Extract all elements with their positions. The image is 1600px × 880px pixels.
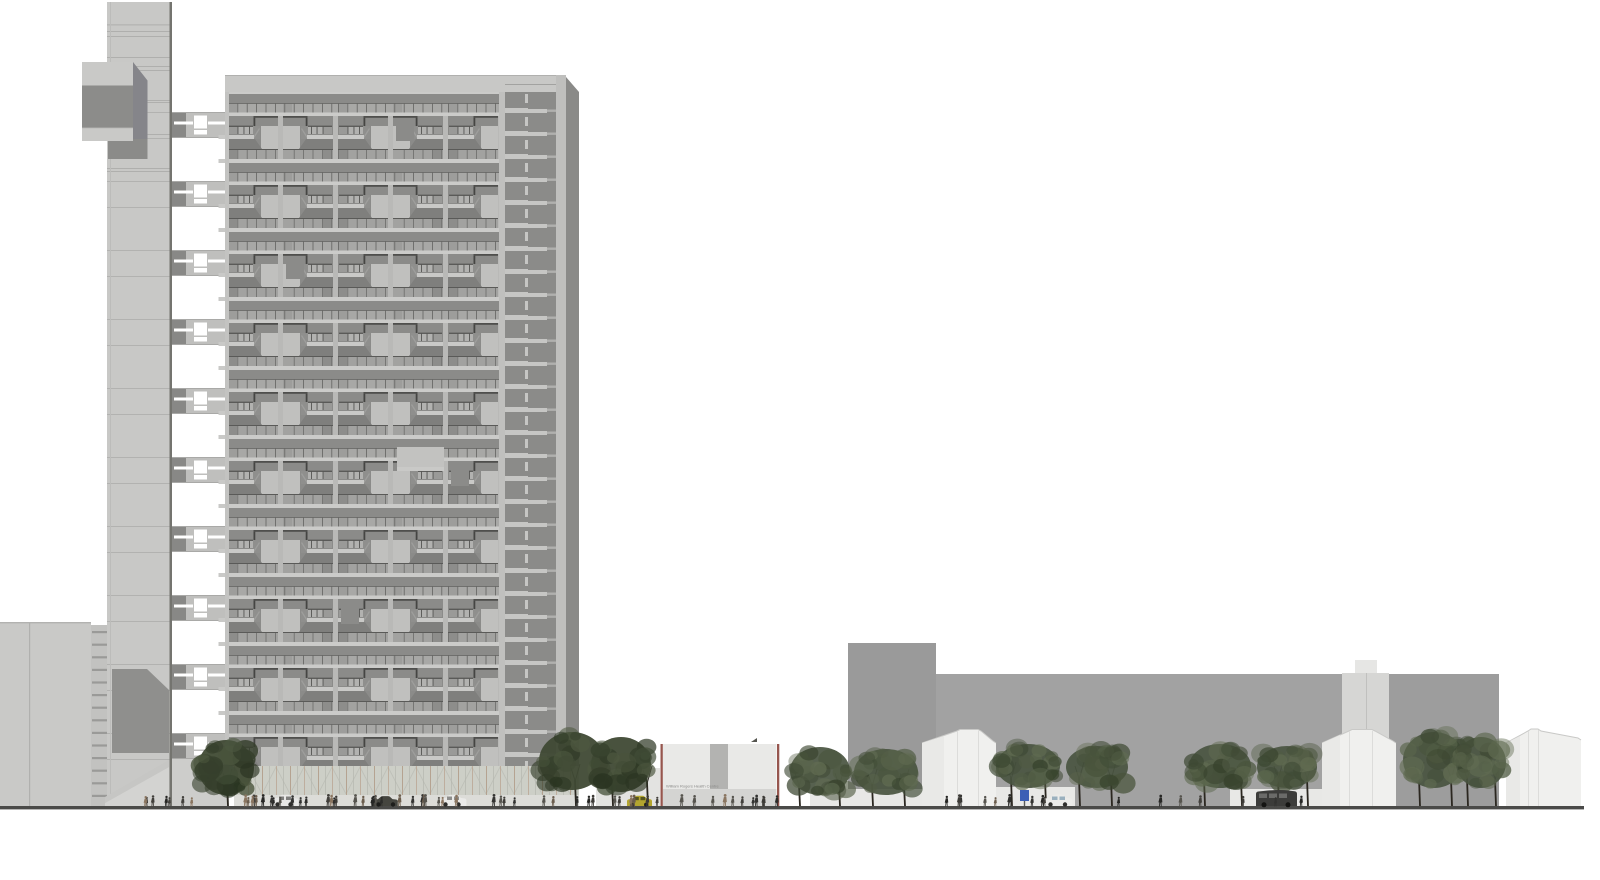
svg-text:William Rogers Health Centre: William Rogers Health Centre (666, 784, 719, 789)
